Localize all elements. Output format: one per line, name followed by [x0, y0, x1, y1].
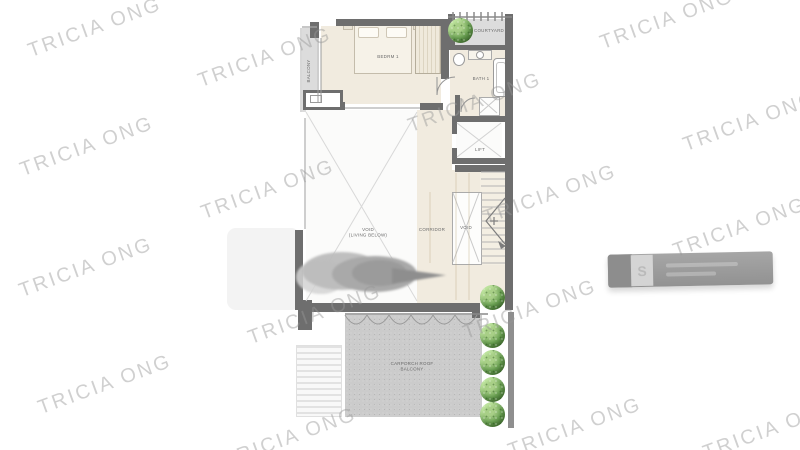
ac-ledge-cross [480, 98, 497, 113]
corridor-label: CORRIDOR [419, 227, 445, 233]
carporch-label: CARPORCH ROOF BALCONY [391, 361, 434, 373]
courtyard-label: COURTYARD [474, 28, 504, 34]
plant-icon [480, 377, 505, 402]
plant-icon [448, 18, 473, 43]
floor-plan-image: BALCONY BEDRM 1 COURTYARD BATH 1 LIFT VO… [0, 0, 800, 450]
bath-label: BATH 1 [473, 76, 490, 82]
plant-icon [480, 350, 505, 375]
stair-void-label: VOID [460, 225, 472, 231]
door-swing-icon [437, 77, 475, 112]
logo-bar: S [608, 250, 774, 289]
tree-canopy-shadow [296, 246, 451, 296]
lift-label: LIFT [475, 147, 485, 153]
plan-linework-layer [0, 0, 800, 450]
window-lines [301, 27, 420, 229]
carporch-label-line2: BALCONY [391, 367, 434, 373]
plant-icon [480, 285, 505, 310]
logo-bar-end-cap [608, 254, 633, 287]
void-label-line2: (LIVING BELOW) [349, 233, 387, 239]
balcony-label: BALCONY [306, 60, 312, 83]
plant-icon [480, 402, 505, 427]
void-label: VOID (LIVING BELOW) [349, 227, 387, 239]
logo-monogram-icon: S [631, 255, 654, 286]
stairs-icon [481, 172, 505, 263]
folding-doors-icon [345, 314, 488, 324]
bedroom-label: BEDRM 1 [377, 54, 398, 60]
plant-icon [480, 323, 505, 348]
logo-glyph: S [637, 262, 647, 278]
